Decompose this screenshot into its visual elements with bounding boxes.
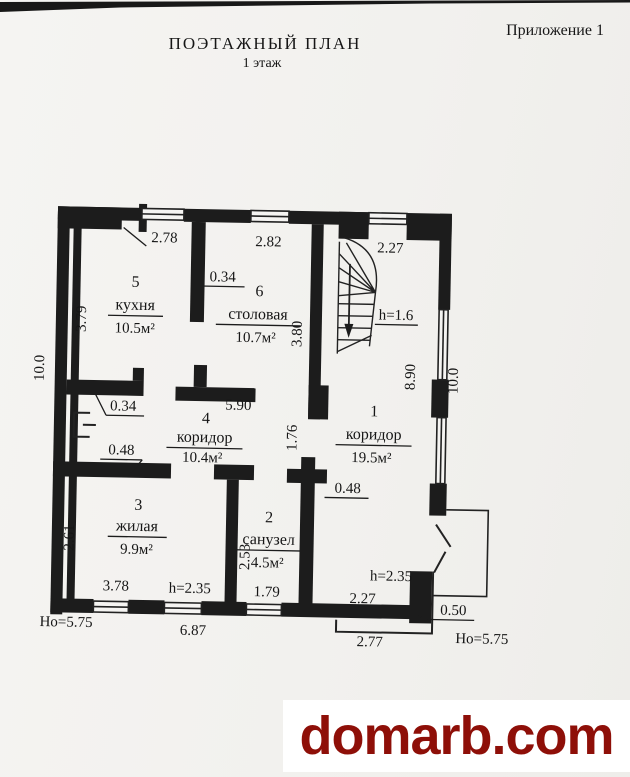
room2-name: санузел <box>242 531 295 549</box>
dim-window-kitchen: 2.78 <box>151 230 178 247</box>
annex-label: Приложение 1 <box>506 22 604 39</box>
room6-area: 10.7м² <box>235 330 276 347</box>
page-title: ПОЭТАЖНЫЙ ПЛАН <box>169 34 362 53</box>
dim-corridor4-width: 5.90 <box>225 398 252 415</box>
dim-ho-left: Но=5.75 <box>39 614 92 631</box>
room-label-living: 3 жилая 9.9м² <box>107 496 167 558</box>
dim-wall-034-top: 0.34 <box>209 269 236 286</box>
room6-number: 6 <box>255 283 263 300</box>
dim-stair-height: h=1.6 <box>379 307 415 324</box>
dim-window-dining: 2.82 <box>255 234 282 251</box>
dim-bottom-mid: 6.87 <box>180 623 207 640</box>
dim-room3-width: 3.78 <box>103 578 130 595</box>
dim-dining-right: 3.80 <box>289 321 306 348</box>
dim-ho-right: Но=5.75 <box>455 631 508 648</box>
watermark-banner: domarb.com <box>283 700 630 772</box>
room5-number: 5 <box>131 274 139 291</box>
room5-name: кухня <box>115 296 155 314</box>
dim-room3-height: h=2.35 <box>168 580 211 597</box>
dim-stair-width: 2.27 <box>377 240 404 257</box>
room3-name: жилая <box>115 517 159 535</box>
room1-name: коридор <box>346 426 402 444</box>
dim-room2-width: 1.79 <box>253 584 280 601</box>
dim-right-total: 10.0 <box>446 368 463 395</box>
dim-room1-width: 2.27 <box>349 591 376 608</box>
stairs <box>337 238 377 355</box>
dim-right-upper: 8.90 <box>403 364 420 391</box>
page-header: Приложение 1 ПОЭТАЖНЫЙ ПЛАН 1 этаж <box>169 22 604 71</box>
room4-area: 10.4м² <box>182 450 223 467</box>
dimension-leaders <box>91 227 481 620</box>
room5-area: 10.5м² <box>114 320 155 337</box>
dim-wall-048-right: 0.48 <box>334 481 361 498</box>
watermark-text: domarb.com <box>299 705 613 767</box>
door-leaf-2 <box>434 552 445 573</box>
room3-area: 9.9м² <box>120 542 154 559</box>
floor-plan-svg: Приложение 1 ПОЭТАЖНЫЙ ПЛАН 1 этаж <box>0 0 630 777</box>
dim-bottom-right: 2.77 <box>356 634 383 651</box>
dim-wall-048-left: 0.48 <box>108 442 135 459</box>
scanned-floor-plan-page: Приложение 1 ПОЭТАЖНЫЙ ПЛАН 1 этаж <box>0 0 630 777</box>
room-label-hall: 1 коридор 19.5м² <box>335 403 412 467</box>
room-label-kitchen: 5 кухня 10.5м² <box>108 273 164 337</box>
scan-edge-artifact <box>0 0 630 12</box>
dim-room1-height: h=2.35 <box>370 568 413 585</box>
dim-wall-034-mid: 0.34 <box>110 398 137 415</box>
dim-left-total: 10.0 <box>32 355 49 382</box>
dim-room3-left: 2.61 <box>61 524 78 551</box>
dim-kitchen-left: 3.79 <box>74 305 91 332</box>
room4-name: коридор <box>177 429 233 447</box>
room6-name: столовая <box>228 306 288 324</box>
floor-plan: 2.78 2.82 2.27 0.34 3.79 10.0 3.80 h=1.6… <box>27 202 517 653</box>
dim-wall-050: 0.50 <box>440 603 467 620</box>
dim-passage-176: 1.76 <box>284 424 301 451</box>
room2-number: 2 <box>265 509 273 526</box>
room-labels: 5 кухня 10.5м² 6 столовая 10.7м² 1 корид… <box>103 273 415 574</box>
door-leaf-1 <box>436 525 451 547</box>
stair-direction-arrow <box>344 264 354 338</box>
room1-number: 1 <box>370 403 378 420</box>
room2-area: 4.5м² <box>251 555 285 572</box>
room3-number: 3 <box>134 497 142 514</box>
room4-number: 4 <box>202 410 210 427</box>
room1-area: 19.5м² <box>351 450 392 467</box>
room-label-corridor: 4 коридор 10.4м² <box>166 409 243 466</box>
page-subtitle: 1 этаж <box>243 56 282 71</box>
